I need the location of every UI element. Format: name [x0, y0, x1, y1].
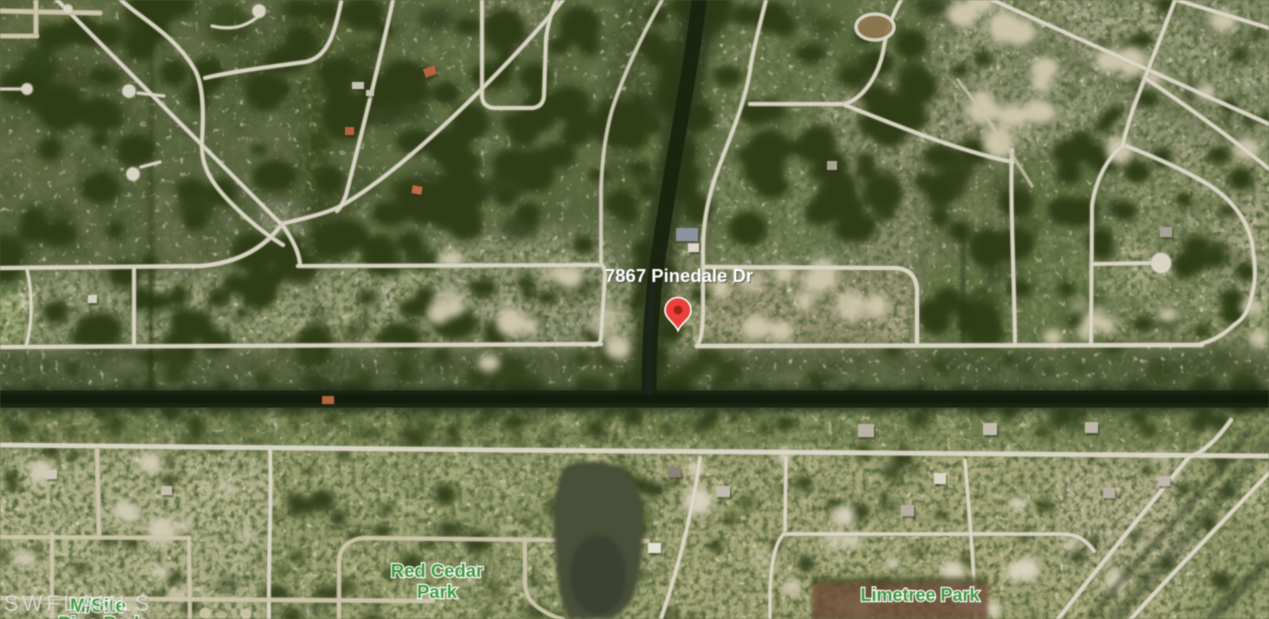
svg-text:SWFLAMLS: SWFLAMLS	[4, 591, 153, 616]
svg-text:Red Cedar: Red Cedar	[391, 560, 484, 581]
svg-text:Park: Park	[417, 581, 458, 602]
svg-text:7867 Pinedale Dr: 7867 Pinedale Dr	[605, 265, 753, 286]
svg-text:Limetree Park: Limetree Park	[860, 585, 980, 605]
